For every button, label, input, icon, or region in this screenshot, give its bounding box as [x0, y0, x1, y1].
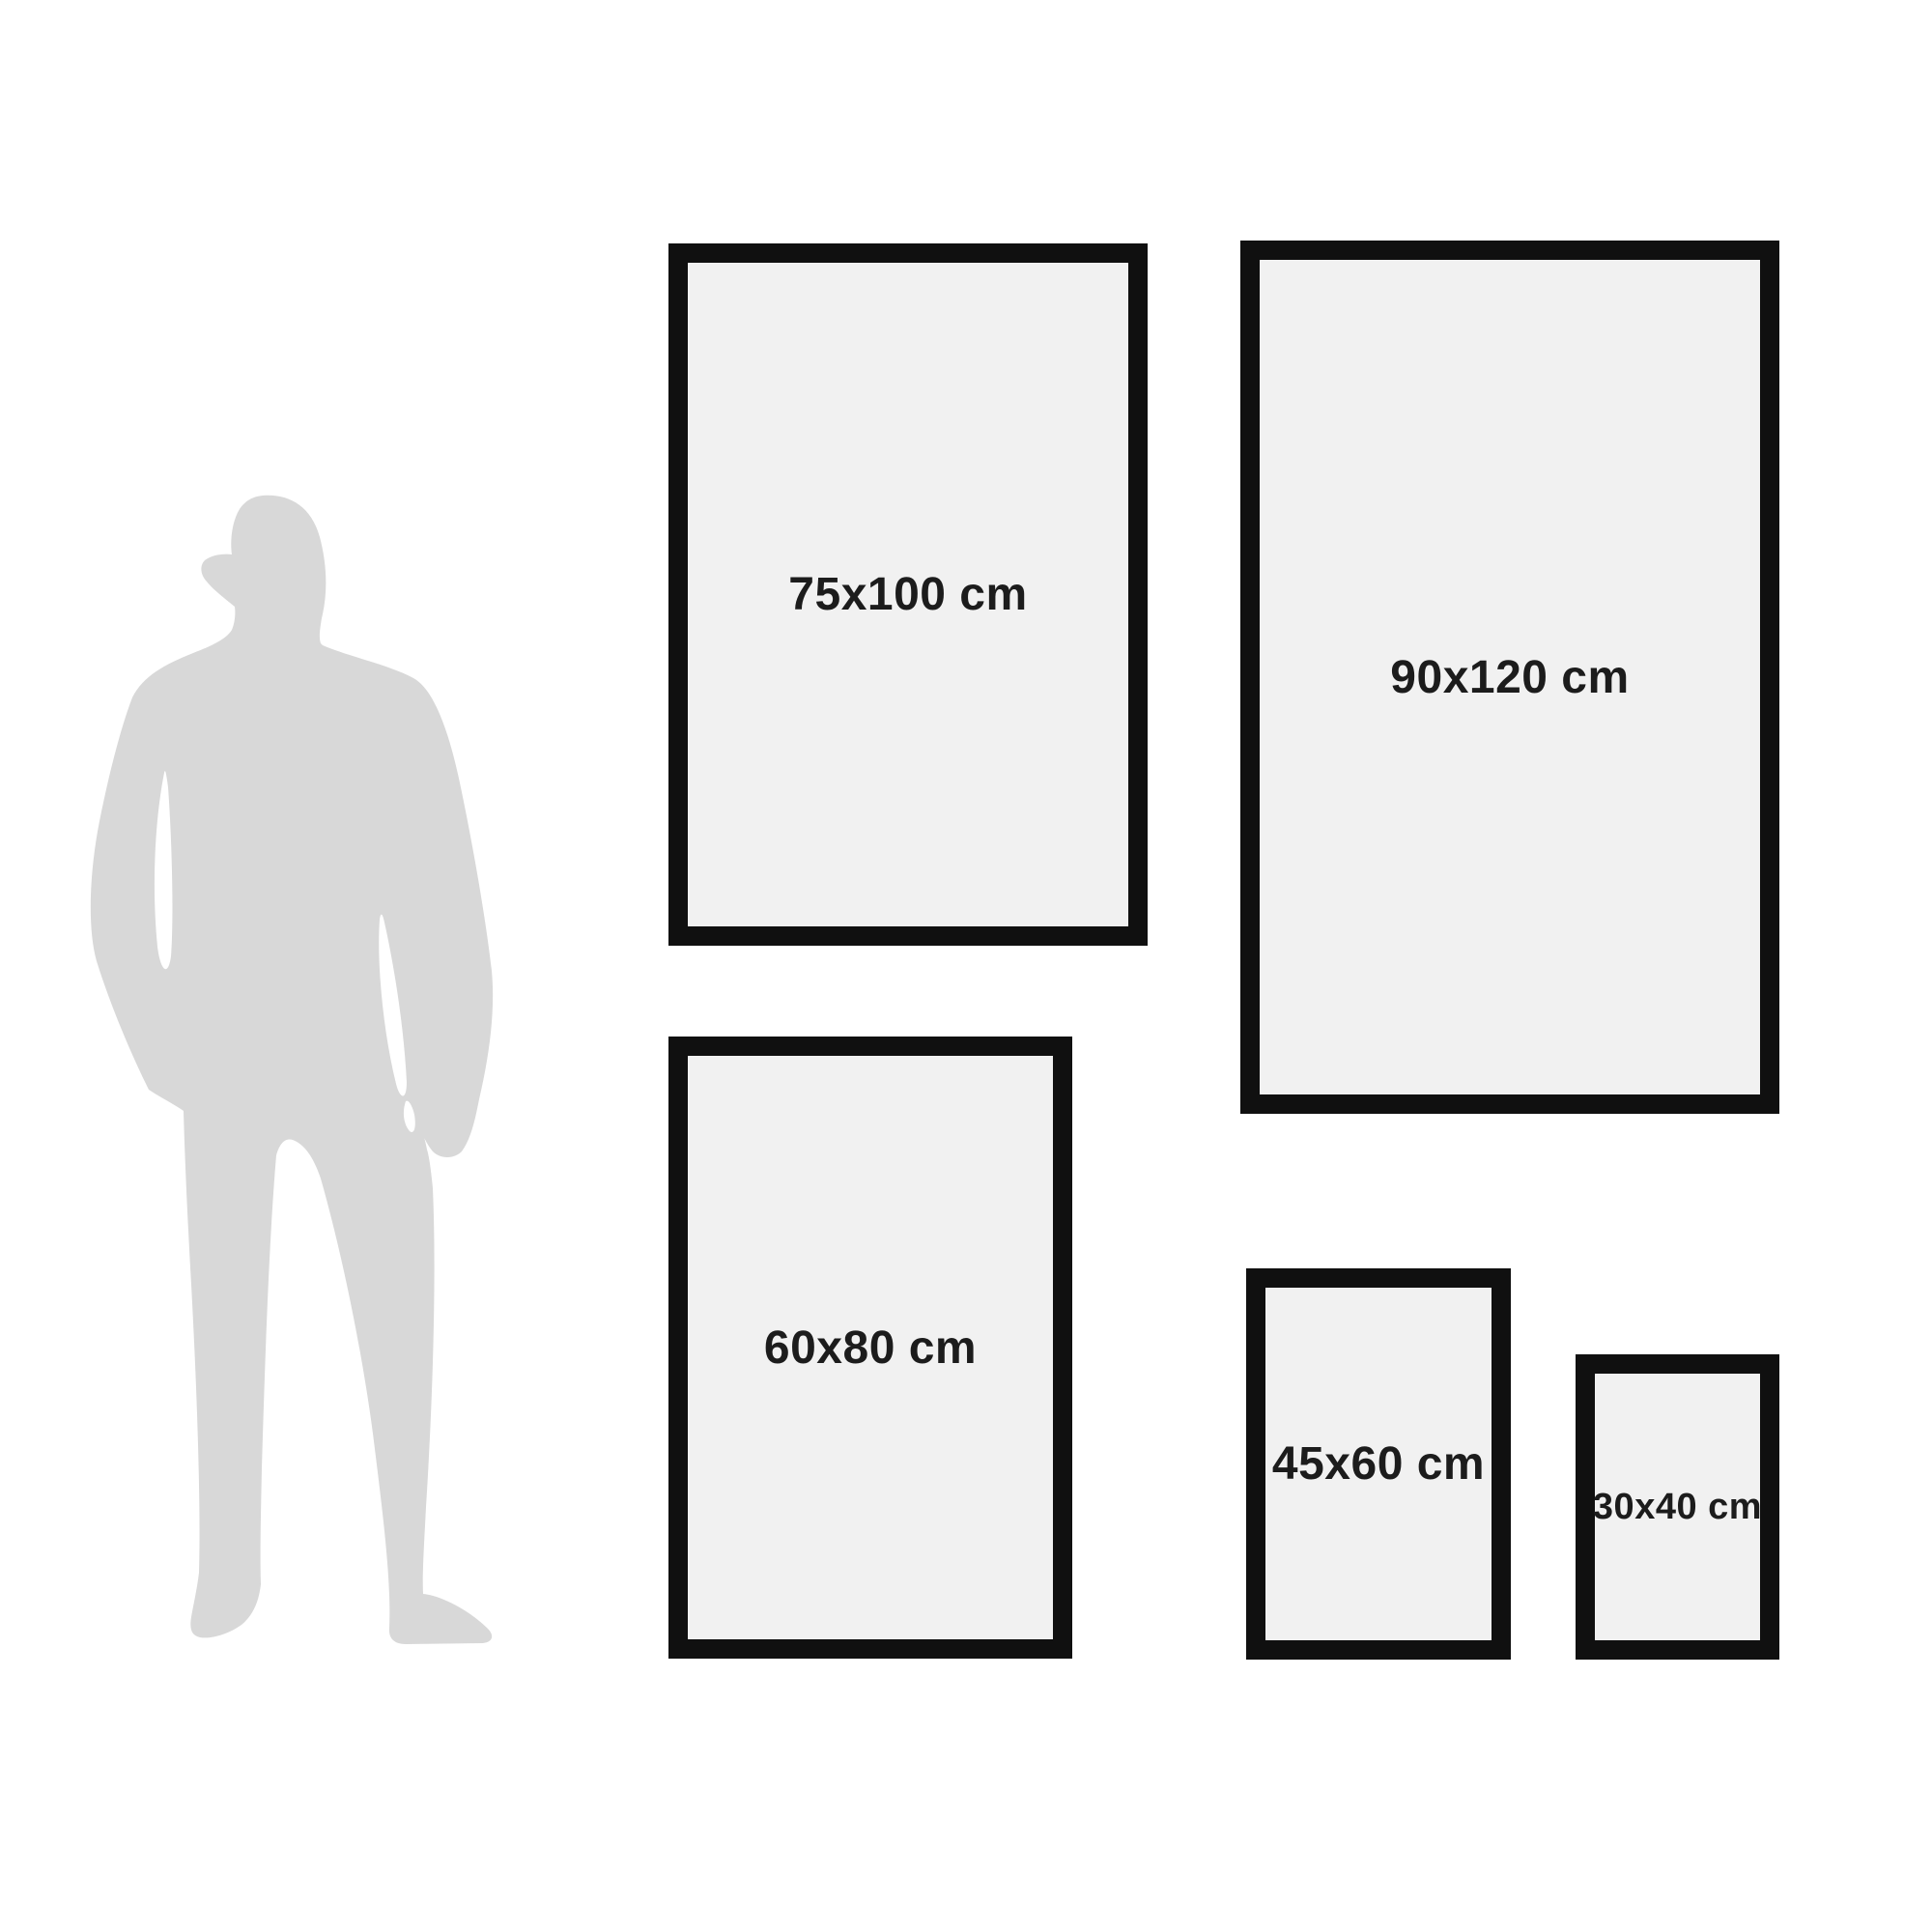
person-body	[91, 496, 493, 1644]
frame-size-label: 90x120 cm	[1390, 651, 1629, 704]
poster-size-guide: 75x100 cm 90x120 cm 60x80 cm 45x60 cm 30…	[0, 0, 1932, 1932]
person-silhouette	[58, 464, 522, 1662]
frame-size-label: 45x60 cm	[1272, 1437, 1485, 1491]
frame-90x120: 90x120 cm	[1240, 241, 1779, 1114]
frame-size-label: 60x80 cm	[764, 1321, 977, 1375]
frame-size-label: 30x40 cm	[1593, 1487, 1762, 1528]
frame-45x60: 45x60 cm	[1246, 1268, 1511, 1660]
frame-75x100: 75x100 cm	[668, 243, 1148, 946]
frame-60x80: 60x80 cm	[668, 1037, 1072, 1659]
frame-size-label: 75x100 cm	[788, 568, 1027, 621]
frame-30x40: 30x40 cm	[1576, 1354, 1779, 1660]
